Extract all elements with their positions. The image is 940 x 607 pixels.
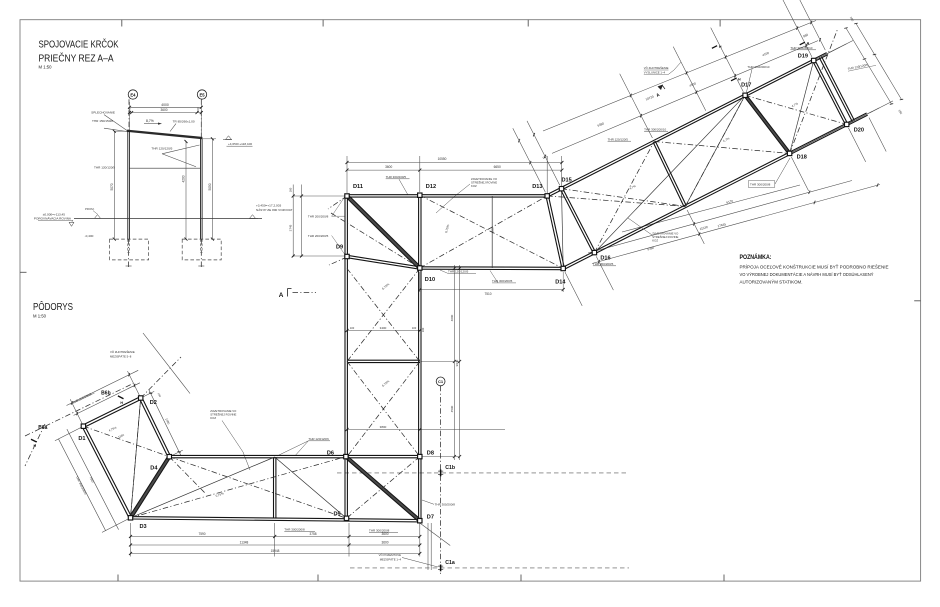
svg-text:THR 300/200/8: THR 300/200/8 bbox=[435, 503, 456, 507]
svg-text:10550: 10550 bbox=[438, 157, 447, 161]
svg-text:PROM.: PROM. bbox=[85, 207, 95, 211]
svg-text:100: 100 bbox=[421, 327, 425, 332]
svg-text:PÔDORYS: PÔDORYS bbox=[33, 300, 73, 313]
svg-text:D15: D15 bbox=[562, 178, 572, 184]
svg-text:TR 85/260x1,00: TR 85/260x1,00 bbox=[173, 120, 195, 124]
svg-text:KOZ: KOZ bbox=[471, 184, 477, 188]
svg-text:THR 300/200/8: THR 300/200/8 bbox=[284, 528, 305, 532]
svg-text:M 1:50: M 1:50 bbox=[39, 65, 52, 70]
svg-text:8,7%: 8,7% bbox=[146, 119, 154, 123]
svg-text:E4: E4 bbox=[130, 92, 136, 97]
svg-text:D6: D6 bbox=[327, 451, 334, 457]
svg-text:D3: D3 bbox=[140, 524, 147, 530]
svg-text:H: H bbox=[120, 401, 123, 405]
svg-text:3758: 3758 bbox=[309, 532, 316, 536]
svg-text:15948: 15948 bbox=[271, 549, 280, 553]
svg-text:NÁSYP ZE 800 VOZOVAT: NÁSYP ZE 800 VOZOVAT bbox=[256, 208, 293, 212]
svg-text:THR 120/120/5: THR 120/120/5 bbox=[448, 270, 469, 274]
svg-text:D18: D18 bbox=[797, 154, 807, 160]
svg-text:D10: D10 bbox=[425, 277, 435, 283]
svg-text:THR 150/150/8: THR 150/150/8 bbox=[92, 119, 113, 123]
svg-text:AUTORIZOVANÝM STATIKOM.: AUTORIZOVANÝM STATIKOM. bbox=[740, 278, 803, 284]
svg-text:D9: D9 bbox=[336, 245, 343, 251]
svg-text:MEZISPÁTE 1–4: MEZISPÁTE 1–4 bbox=[380, 557, 402, 561]
svg-text:PRÍPOJA OCEĽOVÉ KONŠTRUKCIE MU: PRÍPOJA OCEĽOVÉ KONŠTRUKCIE MUSÍ BYŤ POD… bbox=[740, 262, 889, 269]
svg-text:3600: 3600 bbox=[385, 165, 392, 169]
svg-text:SPOJOVACIE KRČOK: SPOJOVACIE KRČOK bbox=[39, 38, 119, 51]
svg-text:THR 300/200/5: THR 300/200/5 bbox=[492, 279, 513, 283]
svg-text:11348: 11348 bbox=[240, 541, 249, 545]
svg-text:KOZ: KOZ bbox=[652, 239, 658, 243]
svg-text:D1: D1 bbox=[78, 436, 85, 442]
svg-text:100: 100 bbox=[128, 107, 132, 112]
svg-text:4000: 4000 bbox=[450, 314, 454, 321]
svg-text:D2: D2 bbox=[150, 400, 157, 406]
svg-text:C1a: C1a bbox=[445, 560, 455, 566]
svg-text:THR 300/200/5: THR 300/200/5 bbox=[593, 262, 614, 266]
svg-text:D7: D7 bbox=[427, 515, 434, 521]
svg-text:9940: 9940 bbox=[455, 359, 459, 366]
svg-text:D14: D14 bbox=[555, 280, 566, 286]
svg-text:B6b: B6b bbox=[101, 391, 110, 397]
svg-text:7510: 7510 bbox=[484, 292, 491, 296]
svg-text:-0,400: -0,400 bbox=[85, 234, 94, 238]
svg-text:VYSLUNICE 1–4: VYSLUNICE 1–4 bbox=[644, 70, 666, 74]
svg-text:POZNÁMKA:: POZNÁMKA: bbox=[740, 252, 772, 261]
svg-text:PRIEČNY REZ A–A: PRIEČNY REZ A–A bbox=[39, 52, 114, 65]
svg-text:THR 300/200/10: THR 300/200/10 bbox=[790, 46, 812, 50]
svg-text:D5: D5 bbox=[334, 511, 341, 517]
svg-text:THR 120/120/5: THR 120/120/5 bbox=[94, 166, 115, 170]
svg-text:VO VÝROBNEJ DOKUMENTÁCIE A NÁV: VO VÝROBNEJ DOKUMENTÁCIE A NÁVRH MUSÍ BY… bbox=[740, 270, 874, 277]
svg-text:THR 120/120/5: THR 120/120/5 bbox=[608, 137, 629, 141]
svg-text:4000: 4000 bbox=[161, 103, 169, 107]
svg-text:KOZ: KOZ bbox=[210, 416, 216, 420]
svg-text:D13: D13 bbox=[532, 184, 542, 190]
svg-text:4590: 4590 bbox=[450, 405, 454, 412]
svg-text:6650: 6650 bbox=[494, 165, 501, 169]
svg-text:3600: 3600 bbox=[381, 541, 388, 545]
svg-text:C1: C1 bbox=[438, 379, 444, 384]
svg-text:D19: D19 bbox=[798, 54, 808, 60]
svg-text:THR 300/200/5: THR 300/200/5 bbox=[386, 175, 407, 179]
svg-text:100: 100 bbox=[412, 326, 417, 330]
svg-text:THR 300/200/10: THR 300/200/10 bbox=[747, 65, 769, 69]
svg-text:3400: 3400 bbox=[380, 326, 387, 330]
svg-text:300: 300 bbox=[196, 107, 200, 112]
svg-text:THR 300/200/8: THR 300/200/8 bbox=[750, 183, 771, 187]
svg-text:3745: 3745 bbox=[289, 224, 293, 231]
svg-text:C1b: C1b bbox=[445, 465, 455, 471]
svg-text:VÔ POZEMTOVE: VÔ POZEMTOVE bbox=[379, 552, 401, 557]
svg-text:160: 160 bbox=[289, 187, 293, 192]
svg-text:D20: D20 bbox=[854, 127, 864, 133]
svg-text:D16: D16 bbox=[600, 256, 610, 262]
svg-text:THR 200/200/5: THR 200/200/5 bbox=[308, 234, 329, 238]
svg-text:3800: 3800 bbox=[380, 425, 387, 429]
svg-text:4200: 4200 bbox=[182, 175, 186, 182]
svg-text:MEZISPÁTE 5–8: MEZISPÁTE 5–8 bbox=[110, 354, 132, 358]
svg-text:7590: 7590 bbox=[198, 532, 205, 536]
svg-text:3600: 3600 bbox=[160, 108, 167, 112]
svg-text:A: A bbox=[279, 292, 284, 299]
svg-text:D4: D4 bbox=[150, 466, 158, 472]
svg-text:D17: D17 bbox=[741, 82, 751, 88]
svg-text:5070: 5070 bbox=[110, 183, 114, 190]
svg-text:THR 200/200/8: THR 200/200/8 bbox=[308, 215, 329, 219]
svg-text:VÔ ZHOTREŠENIE: VÔ ZHOTREŠENIE bbox=[644, 65, 669, 70]
svg-text:100: 100 bbox=[350, 326, 355, 330]
svg-text:160: 160 bbox=[491, 227, 495, 232]
svg-text:5050: 5050 bbox=[208, 183, 212, 190]
svg-text:B6a: B6a bbox=[38, 425, 47, 431]
svg-text:POROVNÁVACIA ROVINA: POROVNÁVACIA ROVINA bbox=[34, 216, 72, 220]
svg-text:THR 120/120/6: THR 120/120/6 bbox=[308, 437, 329, 441]
svg-text:D11: D11 bbox=[353, 184, 363, 190]
svg-text:M 1:50: M 1:50 bbox=[33, 314, 46, 319]
svg-text:THR 300/200/10: THR 300/200/10 bbox=[644, 128, 666, 132]
svg-text:THR 120/120/5: THR 120/120/5 bbox=[151, 147, 172, 151]
svg-text:3600: 3600 bbox=[381, 532, 388, 536]
svg-text:D8: D8 bbox=[427, 451, 434, 457]
svg-text:THR 300/200/8: THR 300/200/8 bbox=[369, 529, 390, 533]
svg-text:+4,650=+118,100: +4,650=+118,100 bbox=[228, 142, 252, 146]
svg-text:SPLECHOVANIE: SPLECHOVANIE bbox=[91, 111, 115, 115]
svg-text:VÔ ZHOTREŠENIE: VÔ ZHOTREŠENIE bbox=[110, 349, 135, 354]
svg-text:H: H bbox=[33, 444, 36, 448]
svg-text:+3,450=+17,2,003: +3,450=+17,2,003 bbox=[256, 203, 281, 207]
svg-text:E5: E5 bbox=[199, 92, 205, 97]
svg-text:D12: D12 bbox=[426, 184, 436, 190]
